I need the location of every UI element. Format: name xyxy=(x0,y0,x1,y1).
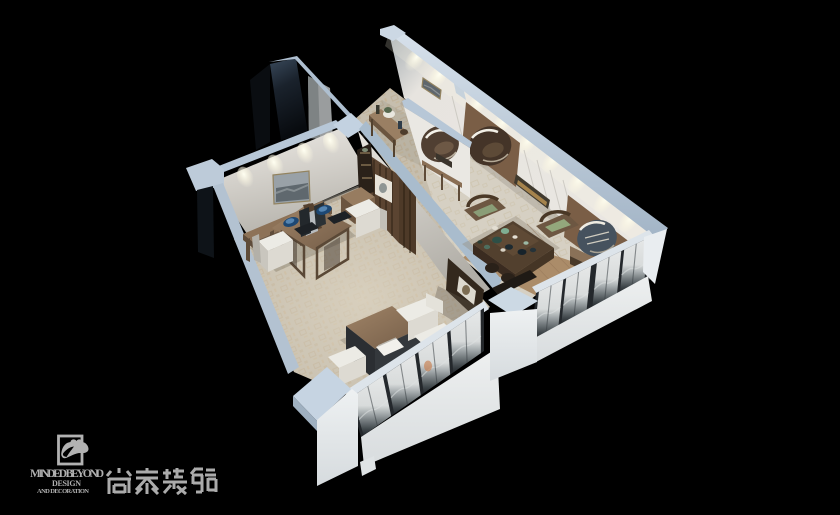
svg-text:DESIGN: DESIGN xyxy=(52,479,81,488)
svg-text:AND DECORATION: AND DECORATION xyxy=(37,488,89,495)
